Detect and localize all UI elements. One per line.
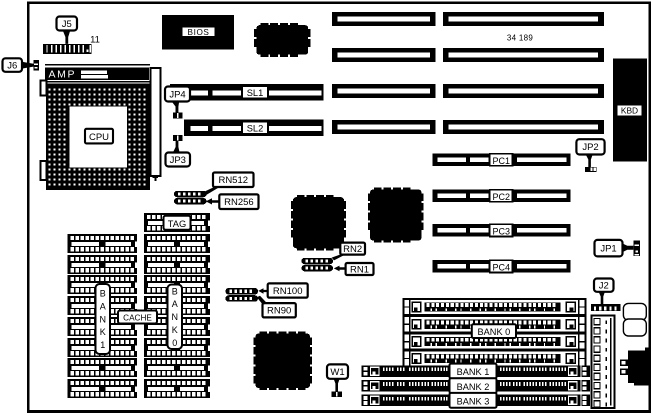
svg-text:SL1: SL1 [247,88,264,98]
svg-text:SL2: SL2 [247,124,264,134]
svg-text:K: K [172,325,178,335]
svg-text:RN256: RN256 [224,197,254,208]
svg-text:RN90: RN90 [267,306,291,317]
svg-text:B: B [100,289,106,299]
svg-text:J6: J6 [7,60,17,71]
svg-text:JP3: JP3 [170,155,186,166]
svg-text:RN1: RN1 [350,264,369,275]
svg-text:RN100: RN100 [273,286,303,297]
svg-text:BANK 3: BANK 3 [457,396,490,406]
svg-text:0: 0 [172,338,177,348]
svg-text:J5: J5 [62,19,72,30]
svg-text:N: N [172,312,179,322]
svg-text:JP4: JP4 [169,89,185,100]
svg-text:CPU: CPU [89,132,109,143]
svg-text:PC2: PC2 [492,192,510,202]
svg-text:A: A [172,299,178,309]
svg-text:BIOS: BIOS [188,28,210,37]
svg-text:1: 1 [100,340,105,350]
svg-text:RN512: RN512 [218,175,248,186]
svg-text:34 189: 34 189 [507,34,534,43]
svg-text:JP2: JP2 [582,142,598,153]
svg-text:N: N [100,314,107,324]
svg-text:BANK 0: BANK 0 [478,327,511,337]
svg-text:BANK 1: BANK 1 [457,367,490,377]
svg-text:W1: W1 [330,367,344,378]
svg-text:JP1: JP1 [600,243,616,254]
svg-text:CACHE: CACHE [123,314,152,323]
svg-text:KBD: KBD [621,106,638,116]
svg-text:PC4: PC4 [492,262,510,272]
svg-text:PC3: PC3 [492,226,510,236]
svg-text:PC1: PC1 [492,156,510,166]
svg-text:J2: J2 [599,280,609,291]
svg-text:RN2: RN2 [343,244,362,255]
svg-text:AMP: AMP [49,69,77,81]
svg-text:K: K [100,327,106,337]
svg-text:B: B [172,286,178,296]
svg-text:BANK 2: BANK 2 [457,382,490,392]
svg-text:A: A [100,301,106,311]
svg-text:11: 11 [90,34,100,45]
svg-text:TAG: TAG [168,219,186,229]
